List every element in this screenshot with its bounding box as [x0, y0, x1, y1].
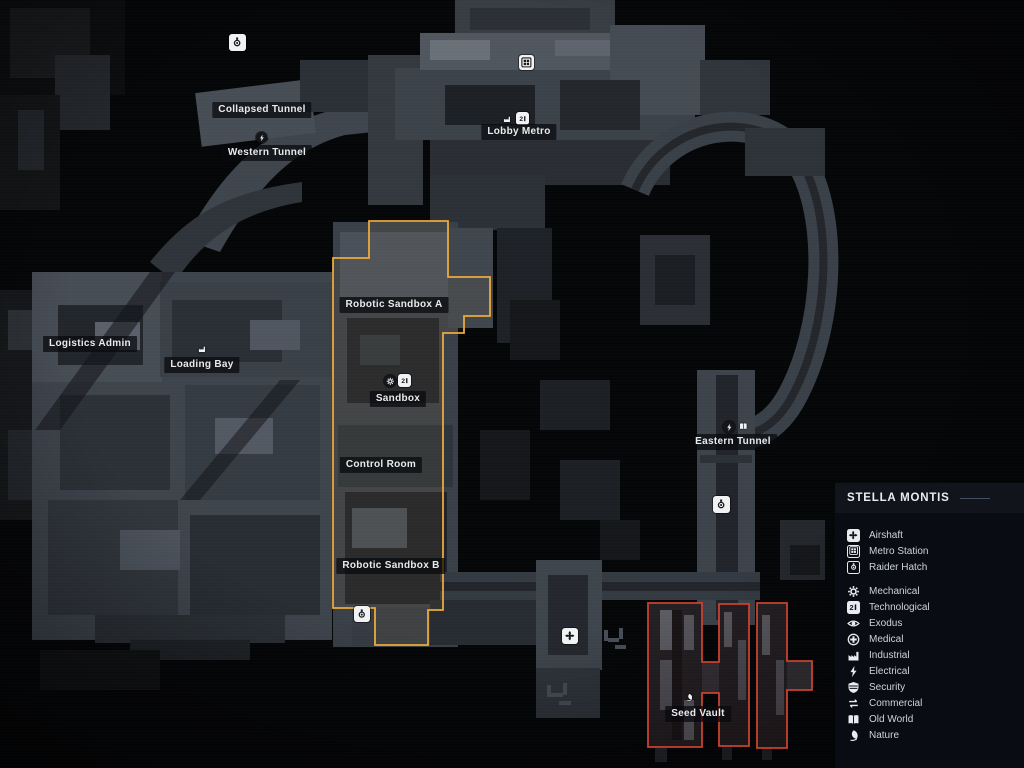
- legend-header: STELLA MONTIS: [835, 483, 1024, 513]
- lightning-icon: [723, 421, 735, 433]
- legend-item-label: Technological: [869, 602, 930, 613]
- airshaft-fan-icon: [847, 529, 860, 542]
- map-label-collapsed-tunnel: Collapsed Tunnel: [212, 102, 311, 118]
- game-map-screen: 2: [0, 0, 1024, 768]
- legend-item-nature: Nature: [847, 727, 1024, 743]
- leaf-icon: [847, 729, 860, 742]
- map-label-seed-vault: Seed Vault: [665, 706, 731, 722]
- legend-panel: STELLA MONTIS Airshaft Metro Station Rai…: [835, 483, 1024, 768]
- map-label-eastern-tunnel: Eastern Tunnel: [689, 434, 777, 450]
- legend-item-security: Security: [847, 679, 1024, 695]
- leaf-icon: [683, 691, 695, 703]
- legend-item-airshaft: Airshaft: [847, 527, 1024, 543]
- metro-station-icon: [519, 55, 534, 70]
- legend-item-label: Commercial: [869, 698, 922, 709]
- airshaft-fan-icon: [562, 628, 578, 644]
- eye-icon: [847, 617, 860, 630]
- raider-hatch-icon: [713, 496, 730, 513]
- seed-vault-highlight: [648, 603, 812, 748]
- book-icon: [737, 420, 749, 432]
- legend-item-label: Security: [869, 682, 905, 693]
- legend-item-old-world: Old World: [847, 711, 1024, 727]
- legend-item-exodus: Exodus: [847, 615, 1024, 631]
- gear-icon: [847, 585, 860, 598]
- lightning-icon: [847, 665, 860, 678]
- raider-hatch-icon: [229, 34, 246, 51]
- map-label-control-room: Control Room: [340, 457, 422, 473]
- chip-icon: [847, 601, 860, 614]
- legend-item-electrical: Electrical: [847, 663, 1024, 679]
- raider-hatch-icon: [847, 561, 860, 574]
- legend-item-label: Airshaft: [869, 530, 903, 541]
- legend-item-label: Mechanical: [869, 586, 920, 597]
- map-label-western-tunnel: Western Tunnel: [222, 145, 312, 161]
- legend-item-metro-station: Metro Station: [847, 543, 1024, 559]
- legend-item-label: Nature: [869, 730, 899, 741]
- legend-divider: [960, 498, 990, 499]
- legend-item-commercial: Commercial: [847, 695, 1024, 711]
- map-label-robotic-sandbox-a: Robotic Sandbox A: [340, 297, 449, 313]
- legend-list: Airshaft Metro Station Raider Hatch Mech…: [835, 513, 1024, 743]
- map-label-lobby-metro: Lobby Metro: [481, 124, 556, 140]
- commerce-arrows-icon: [847, 697, 860, 710]
- map-label-sandbox: Sandbox: [370, 391, 426, 407]
- book-icon: [847, 713, 860, 726]
- legend-item-label: Electrical: [869, 666, 910, 677]
- legend-item-industrial: Industrial: [847, 647, 1024, 663]
- legend-item-label: Metro Station: [869, 546, 928, 557]
- map-label-logistics-admin: Logistics Admin: [43, 336, 137, 352]
- raider-hatch-icon: [354, 606, 370, 622]
- factory-icon: [501, 113, 512, 124]
- legend-item-label: Exodus: [869, 618, 902, 629]
- factory-icon: [196, 343, 207, 354]
- legend-item-label: Industrial: [869, 650, 910, 661]
- legend-item-label: Raider Hatch: [869, 562, 927, 573]
- metro-station-icon: [847, 545, 860, 558]
- legend-title: STELLA MONTIS: [847, 492, 950, 504]
- medical-cross-icon: [847, 633, 860, 646]
- map-label-robotic-sandbox-b: Robotic Sandbox B: [336, 558, 445, 574]
- map-label-loading-bay: Loading Bay: [164, 357, 239, 373]
- shield-icon: [847, 681, 860, 694]
- lightning-icon: [256, 132, 267, 143]
- legend-item-mechanical: Mechanical: [847, 583, 1024, 599]
- factory-icon: [847, 649, 860, 662]
- legend-item-technological: Technological: [847, 599, 1024, 615]
- chip-icon: [398, 374, 411, 387]
- legend-item-medical: Medical: [847, 631, 1024, 647]
- gear-icon: [384, 375, 396, 387]
- legend-item-label: Old World: [869, 714, 913, 725]
- legend-item-raider-hatch: Raider Hatch: [847, 559, 1024, 575]
- legend-item-label: Medical: [869, 634, 903, 645]
